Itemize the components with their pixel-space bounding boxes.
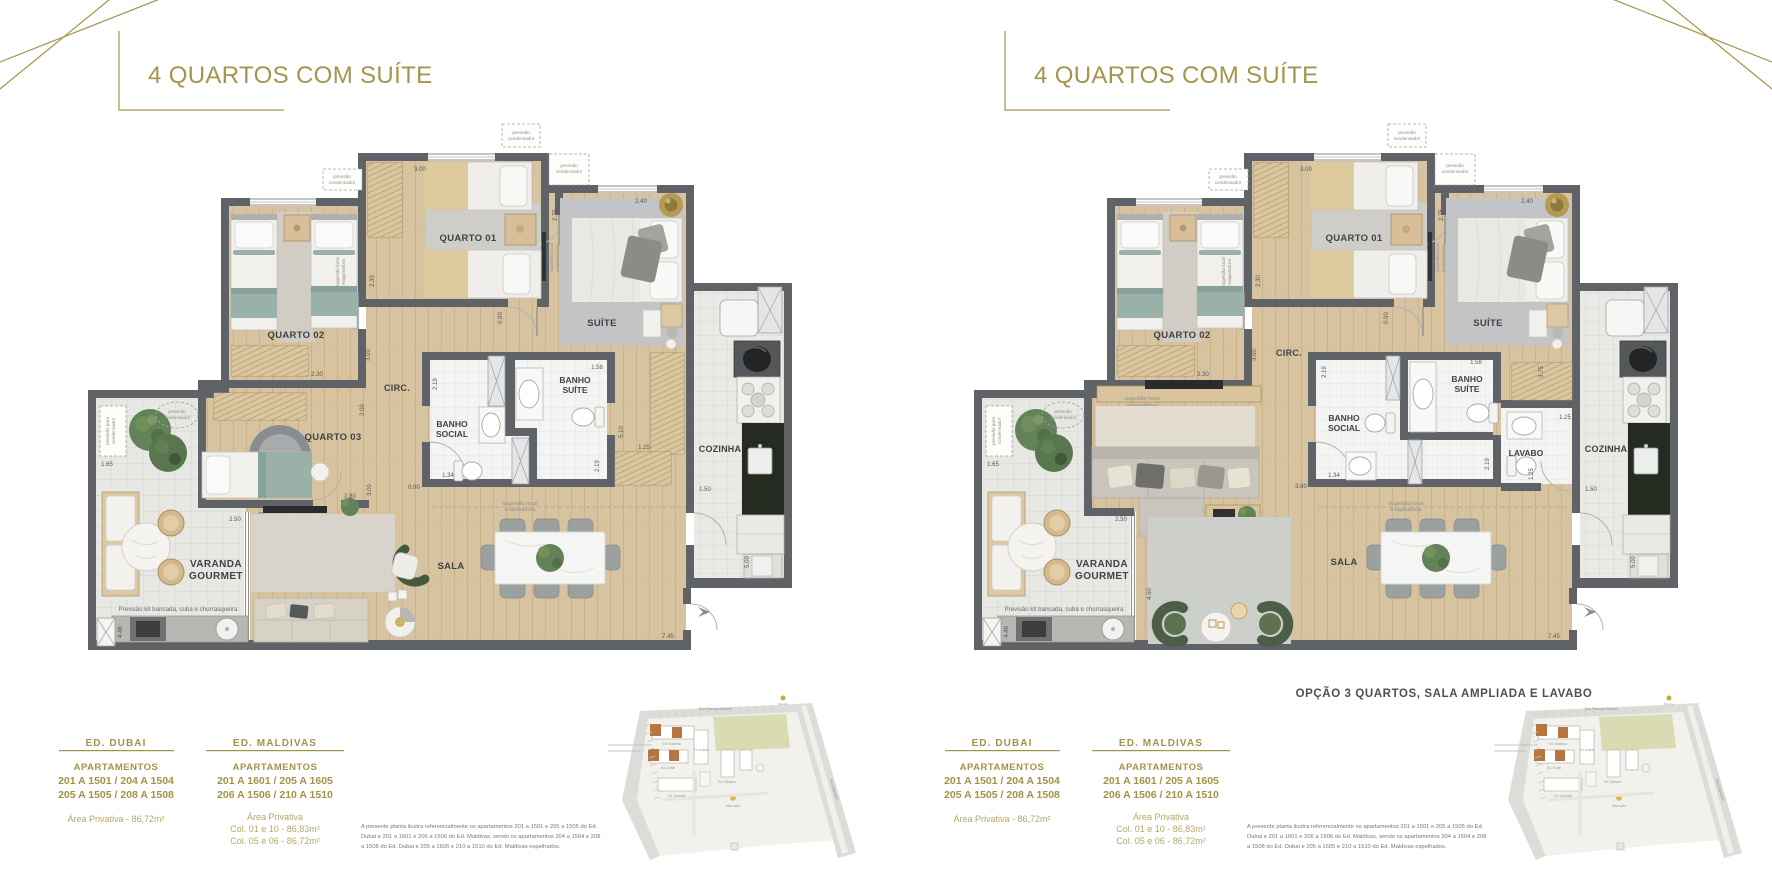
svg-text:sugestão local: sugestão local bbox=[1124, 396, 1159, 402]
svg-text:4.50: 4.50 bbox=[1147, 588, 1153, 600]
svg-text:5.10: 5.10 bbox=[619, 426, 625, 438]
svg-text:SUÍTE: SUÍTE bbox=[562, 385, 587, 395]
svg-text:1.25: 1.25 bbox=[1529, 468, 1535, 480]
svg-text:3.80: 3.80 bbox=[1295, 484, 1307, 490]
svg-text:CIRC.: CIRC. bbox=[384, 383, 410, 393]
svg-text:BANHO: BANHO bbox=[559, 375, 591, 385]
svg-text:1.25: 1.25 bbox=[638, 445, 650, 451]
svg-text:CIRC.: CIRC. bbox=[1276, 348, 1302, 358]
svg-text:1.25: 1.25 bbox=[1559, 415, 1571, 421]
svg-text:SUÍTE: SUÍTE bbox=[1454, 384, 1479, 394]
svg-text:1.34: 1.34 bbox=[442, 473, 454, 479]
svg-text:BANHO: BANHO bbox=[436, 419, 468, 429]
svg-text:1.58: 1.58 bbox=[1470, 360, 1482, 366]
svg-text:3.75: 3.75 bbox=[1539, 366, 1545, 378]
svg-text:2.19: 2.19 bbox=[433, 378, 439, 390]
svg-text:2.19: 2.19 bbox=[595, 460, 601, 472]
svg-text:SALA: SALA bbox=[1330, 557, 1357, 568]
svg-text:SOCIAL: SOCIAL bbox=[436, 429, 468, 439]
svg-text:LAVABO: LAVABO bbox=[1509, 448, 1544, 458]
svg-text:SOCIAL: SOCIAL bbox=[1328, 423, 1360, 433]
svg-text:3.00: 3.00 bbox=[367, 484, 373, 496]
svg-text:2.19: 2.19 bbox=[1485, 458, 1491, 470]
svg-text:QUARTO 03: QUARTO 03 bbox=[305, 432, 362, 443]
svg-text:2.19: 2.19 bbox=[1322, 366, 1328, 378]
svg-text:1.58: 1.58 bbox=[591, 365, 603, 371]
svg-text:BANHO: BANHO bbox=[1328, 413, 1360, 423]
svg-text:BANHO: BANHO bbox=[1451, 374, 1483, 384]
svg-text:0.90: 0.90 bbox=[408, 485, 420, 491]
svg-text:SALA: SALA bbox=[437, 561, 464, 572]
svg-text:1.34: 1.34 bbox=[1328, 473, 1340, 479]
svg-text:OPÇÃO 3 QUARTOS, SALA AMPLIADA: OPÇÃO 3 QUARTOS, SALA AMPLIADA E LAVABO bbox=[1296, 687, 1593, 700]
svg-text:2.00: 2.00 bbox=[360, 404, 366, 416]
